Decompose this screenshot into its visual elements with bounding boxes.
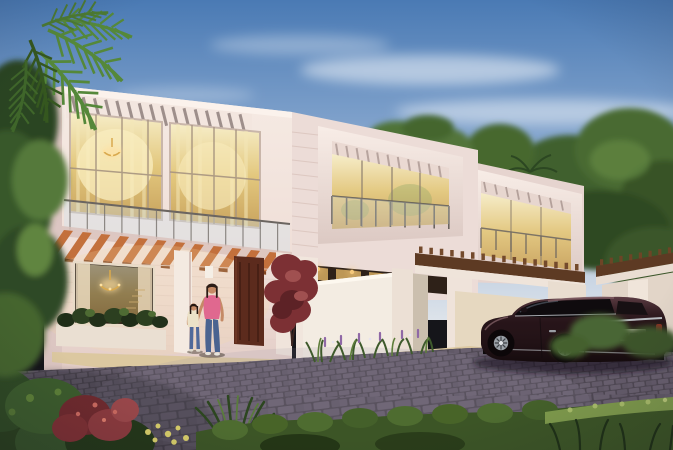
vignette-overlay xyxy=(0,0,673,450)
architectural-rendering xyxy=(0,0,673,450)
villa-scene xyxy=(0,0,673,450)
